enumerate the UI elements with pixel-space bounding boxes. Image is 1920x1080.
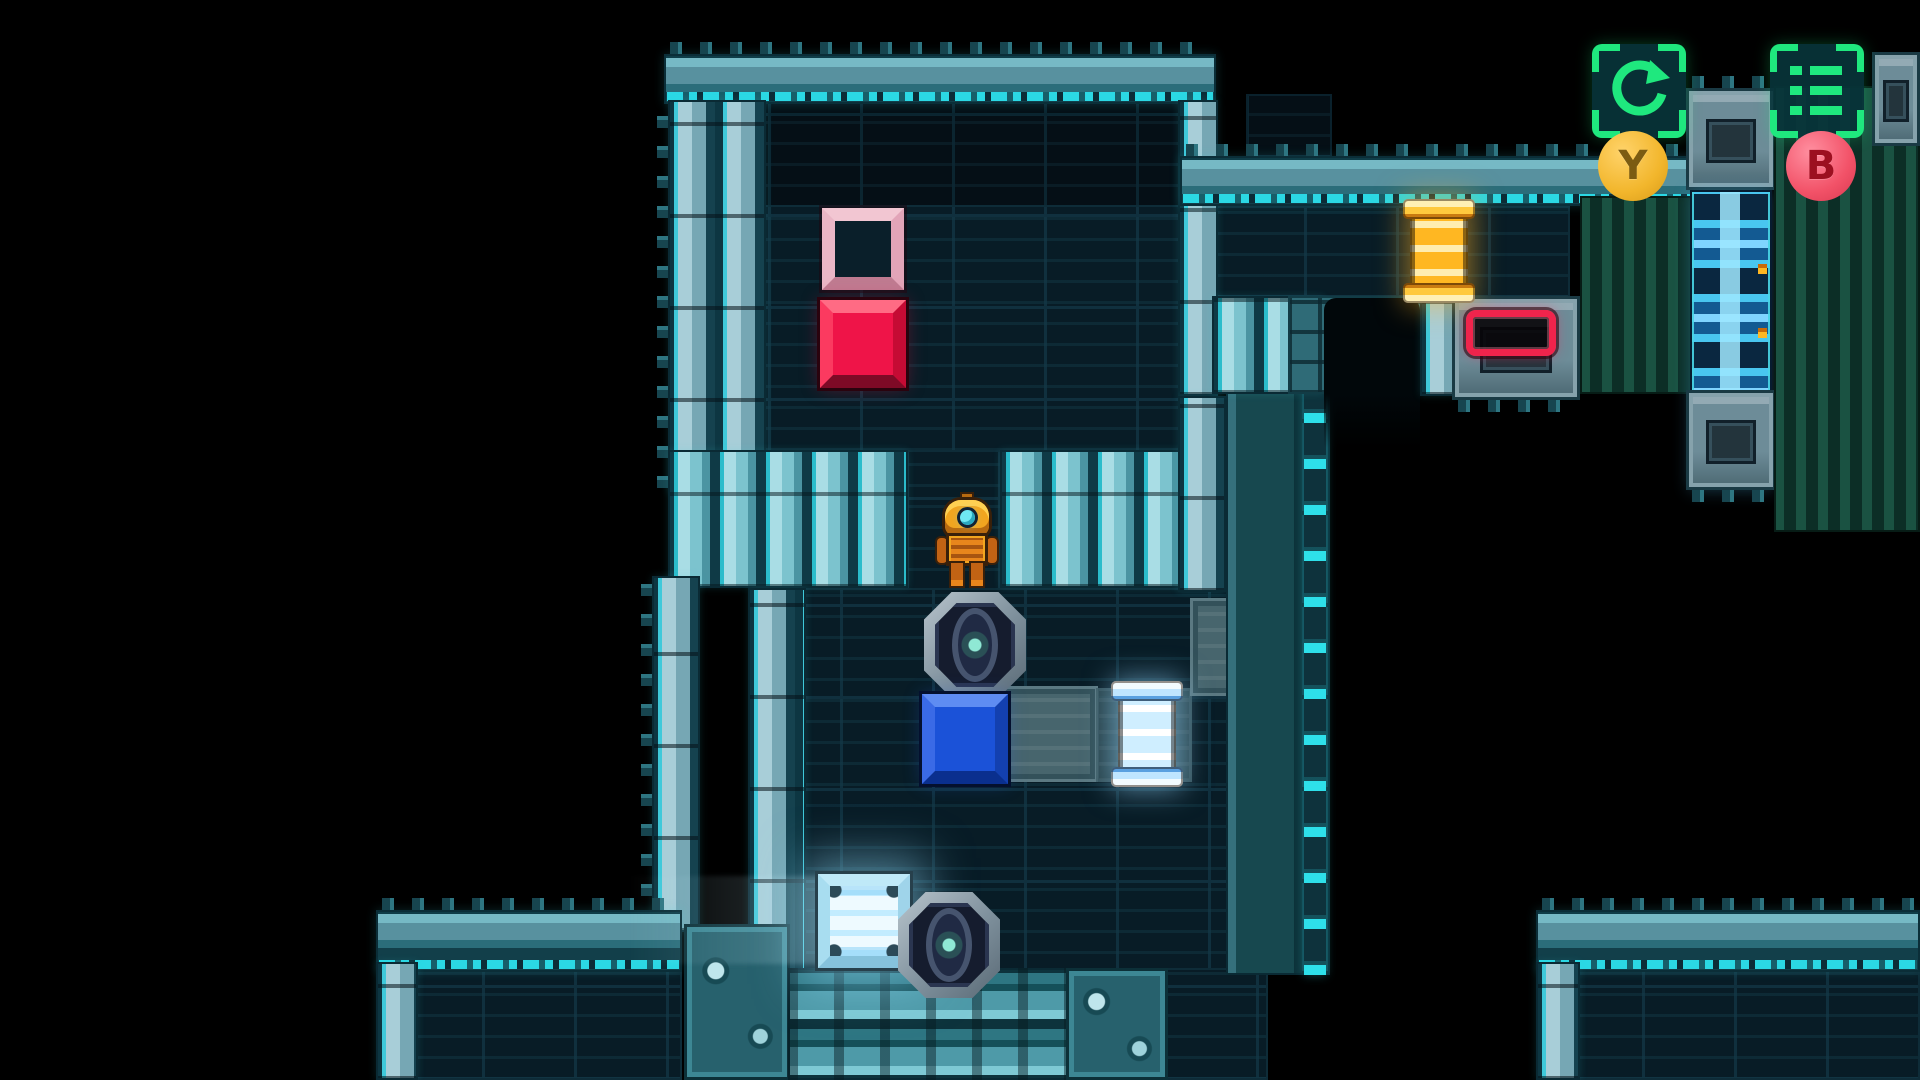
gamepad-b-button[interactable]: B — [1786, 131, 1856, 201]
r-eye — [960, 510, 975, 525]
game-viewport: Y B — [0, 0, 1920, 1080]
menu-list-icon — [1770, 44, 1864, 138]
corner-bolt-block — [1066, 968, 1168, 1080]
orange-energy-spool — [1410, 202, 1468, 300]
gamepad-y-label: Y — [1619, 143, 1648, 189]
corridor-right-wall-upper — [1178, 396, 1226, 592]
pink-target-socket — [822, 208, 904, 290]
r-arm-l — [937, 538, 947, 563]
blue-push-block — [922, 694, 1008, 784]
room-a-top-wall — [664, 54, 1216, 104]
restart-button[interactable] — [1592, 44, 1686, 138]
machine-corner — [1872, 52, 1920, 146]
room-c-floor — [390, 968, 682, 1080]
gamepad-b-label: B — [1806, 143, 1837, 189]
pipe-machine-bottom — [1686, 390, 1776, 490]
gamepad-y-button[interactable]: Y — [1598, 131, 1668, 201]
room-a-bottom-wall-left — [668, 450, 908, 588]
room-b-floor — [1212, 206, 1570, 298]
r-torso — [949, 536, 985, 563]
path-tile — [1002, 686, 1098, 782]
hatch-eye-tile — [924, 592, 1026, 698]
doorway-right-jamb — [1420, 296, 1454, 396]
r-arm-r — [987, 538, 997, 563]
charged-glow-block — [818, 874, 910, 968]
room-a-left-wall — [668, 100, 766, 494]
restart-arrow-icon — [1592, 44, 1686, 138]
hatch-eye-tile — [898, 892, 1000, 998]
light-spill — [628, 876, 828, 964]
floor-patch — [1164, 968, 1268, 1080]
red-spool-socket — [1466, 310, 1556, 356]
doorway-opening — [1324, 298, 1420, 448]
red-push-block — [820, 300, 906, 388]
room-d-floor — [1550, 968, 1920, 1080]
corridor-right-wall — [1226, 392, 1330, 975]
r-leg-l — [951, 563, 963, 586]
room-c-left-wall — [376, 962, 418, 1080]
room-d-left-wall — [1536, 962, 1580, 1080]
menu-button[interactable] — [1770, 44, 1864, 138]
pipe-machine-top — [1686, 88, 1776, 190]
pillar-wall — [1580, 196, 1696, 394]
blue-energy-spool — [1118, 684, 1176, 784]
r-leg-r — [971, 563, 983, 586]
player-robot — [936, 494, 998, 588]
room-d-top-wall — [1536, 910, 1920, 972]
